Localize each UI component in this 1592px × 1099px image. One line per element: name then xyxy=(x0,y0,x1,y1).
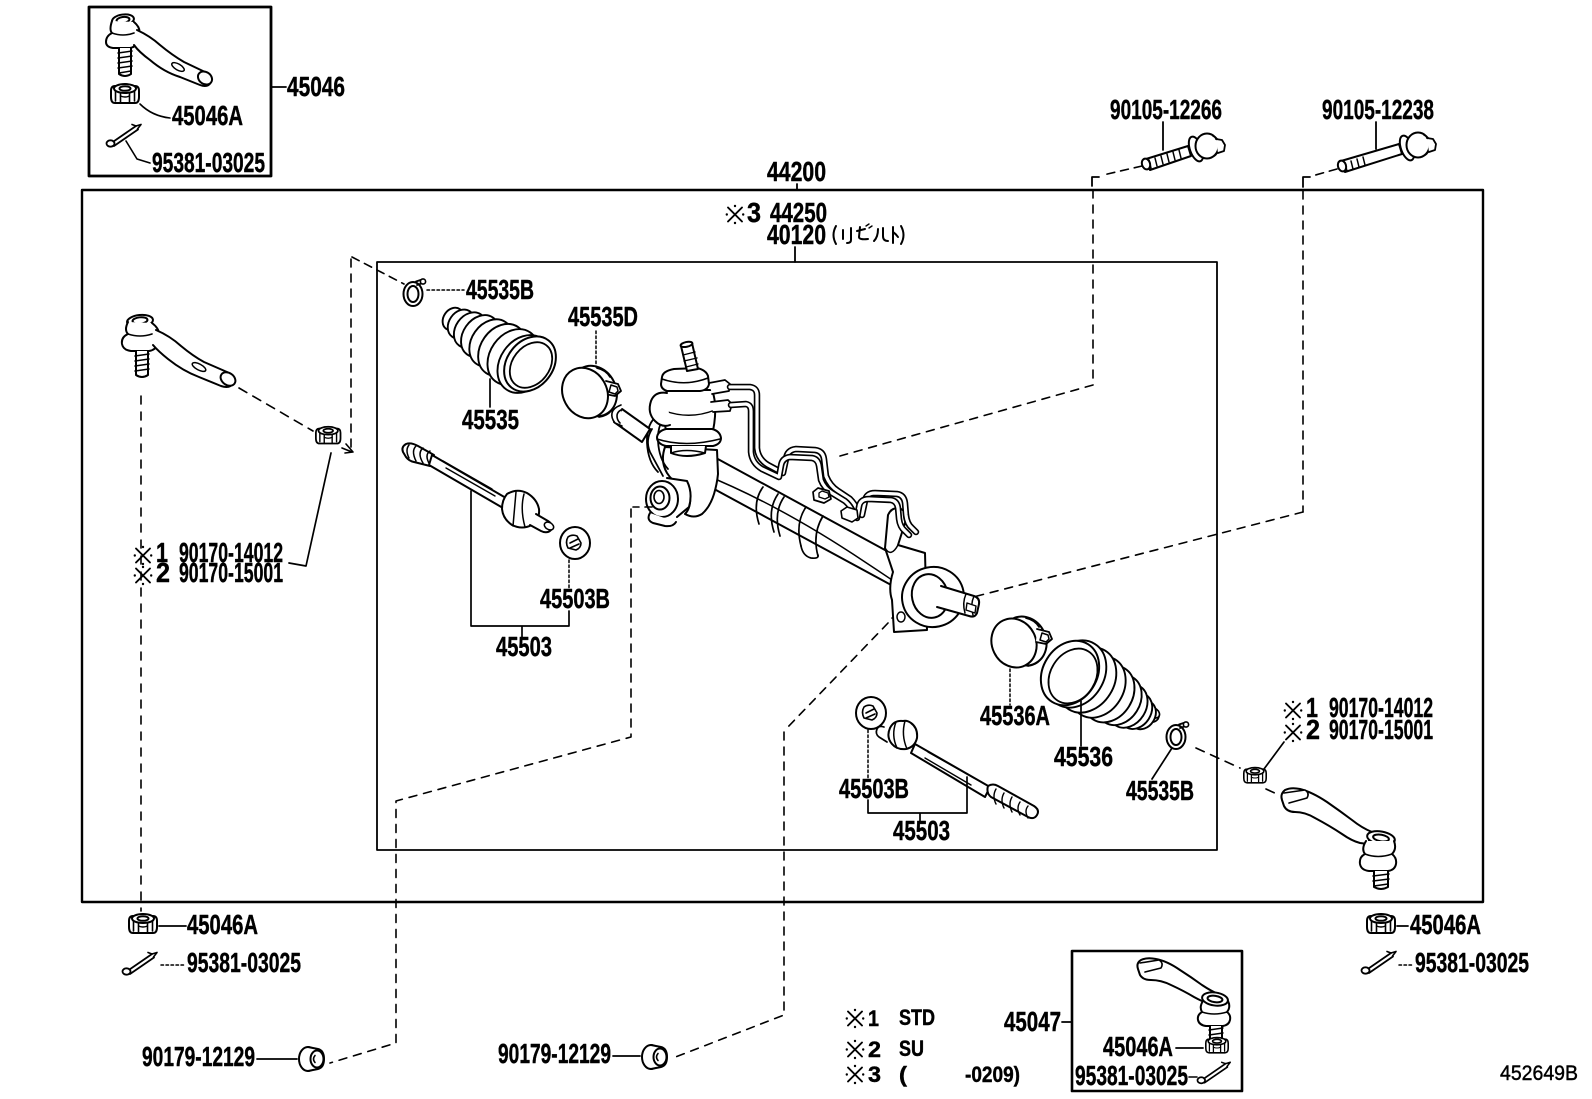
svg-text:90170-15001: 90170-15001 xyxy=(1329,714,1433,745)
svg-text:SU: SU xyxy=(899,1036,924,1061)
svg-text:90179-12129: 90179-12129 xyxy=(142,1041,255,1072)
svg-text:45046A: 45046A xyxy=(1103,1031,1173,1062)
svg-text:90105-12238: 90105-12238 xyxy=(1322,94,1434,125)
svg-text:90105-12266: 90105-12266 xyxy=(1110,94,1222,125)
svg-text:95381-03025: 95381-03025 xyxy=(187,947,301,978)
svg-text:(: ( xyxy=(899,1062,908,1087)
svg-text:90170-15001: 90170-15001 xyxy=(179,557,283,588)
svg-text:-0209): -0209) xyxy=(965,1062,1020,1087)
svg-text:45536: 45536 xyxy=(1054,741,1113,772)
svg-text:45536A: 45536A xyxy=(980,700,1050,731)
svg-text:45046A: 45046A xyxy=(187,909,258,940)
svg-text:95381-03025: 95381-03025 xyxy=(1415,947,1529,978)
svg-text:45503B: 45503B xyxy=(540,583,610,614)
svg-text:2: 2 xyxy=(1306,714,1320,745)
svg-text:45535B: 45535B xyxy=(1126,775,1194,806)
svg-text:45046A: 45046A xyxy=(172,100,243,131)
svg-text:45535: 45535 xyxy=(462,404,519,435)
svg-text:45535B: 45535B xyxy=(466,274,534,305)
svg-text:3: 3 xyxy=(868,1062,881,1087)
svg-text:40120: 40120 xyxy=(767,219,826,250)
svg-text:45046: 45046 xyxy=(287,71,345,102)
svg-text:95381-03025: 95381-03025 xyxy=(152,147,265,178)
svg-text:45503: 45503 xyxy=(496,631,552,662)
svg-text:90179-12129: 90179-12129 xyxy=(498,1038,611,1069)
svg-text:45046A: 45046A xyxy=(1410,909,1481,940)
svg-text:45503B: 45503B xyxy=(839,773,909,804)
svg-text:452649B: 452649B xyxy=(1500,1062,1578,1085)
svg-text:2: 2 xyxy=(868,1037,881,1062)
svg-text:3: 3 xyxy=(747,197,761,228)
svg-text:STD: STD xyxy=(899,1005,935,1030)
svg-text:45047: 45047 xyxy=(1004,1006,1061,1037)
svg-text:45503: 45503 xyxy=(893,815,950,846)
svg-text:45535D: 45535D xyxy=(568,301,638,332)
svg-text:95381-03025: 95381-03025 xyxy=(1075,1060,1188,1091)
svg-text:2: 2 xyxy=(156,557,170,588)
svg-text:1: 1 xyxy=(868,1006,879,1031)
svg-text:44200: 44200 xyxy=(767,156,826,187)
